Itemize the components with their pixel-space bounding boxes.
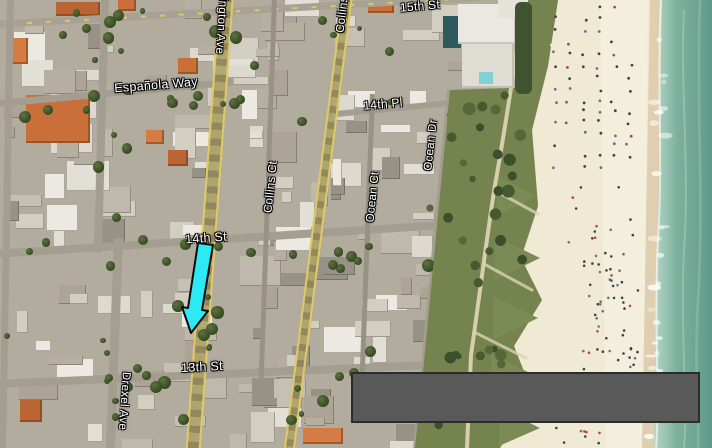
street-label-13th-st: 13th St — [181, 359, 223, 375]
gray-overlay-box — [351, 372, 700, 423]
street-label-drexel-ave: Drexel Ave — [116, 371, 132, 430]
street-label-washington-ave: Washington Ave — [213, 0, 231, 55]
street-label-collins-ave: Collins Ave — [334, 0, 353, 33]
street-label-espanola-way: Española Way — [114, 75, 199, 96]
street-label-ocean-ct: Ocean Ct — [364, 171, 381, 223]
satellite-map-viewport[interactable]: 15th St Española Way 14th Pl 14th St 13t… — [0, 0, 712, 448]
street-label-collins-ct: Collins Ct — [262, 160, 279, 213]
street-label-14th-st: 14th St — [185, 230, 228, 247]
street-label-14th-pl: 14th Pl — [363, 95, 404, 112]
street-label-15th-st: 15th St — [399, 0, 440, 15]
street-label-ocean-dr: Ocean Dr — [422, 119, 439, 172]
